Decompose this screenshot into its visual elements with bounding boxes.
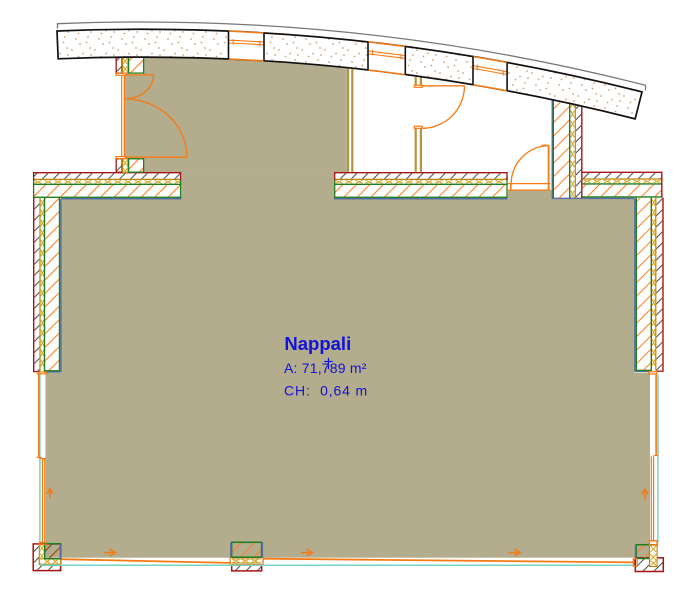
svg-text:A: 71,789 m²: A: 71,789 m² (284, 360, 367, 376)
svg-text:CH: 0,64 m: CH: 0,64 m (284, 382, 368, 398)
svg-text:Nappali: Nappali (284, 333, 351, 354)
